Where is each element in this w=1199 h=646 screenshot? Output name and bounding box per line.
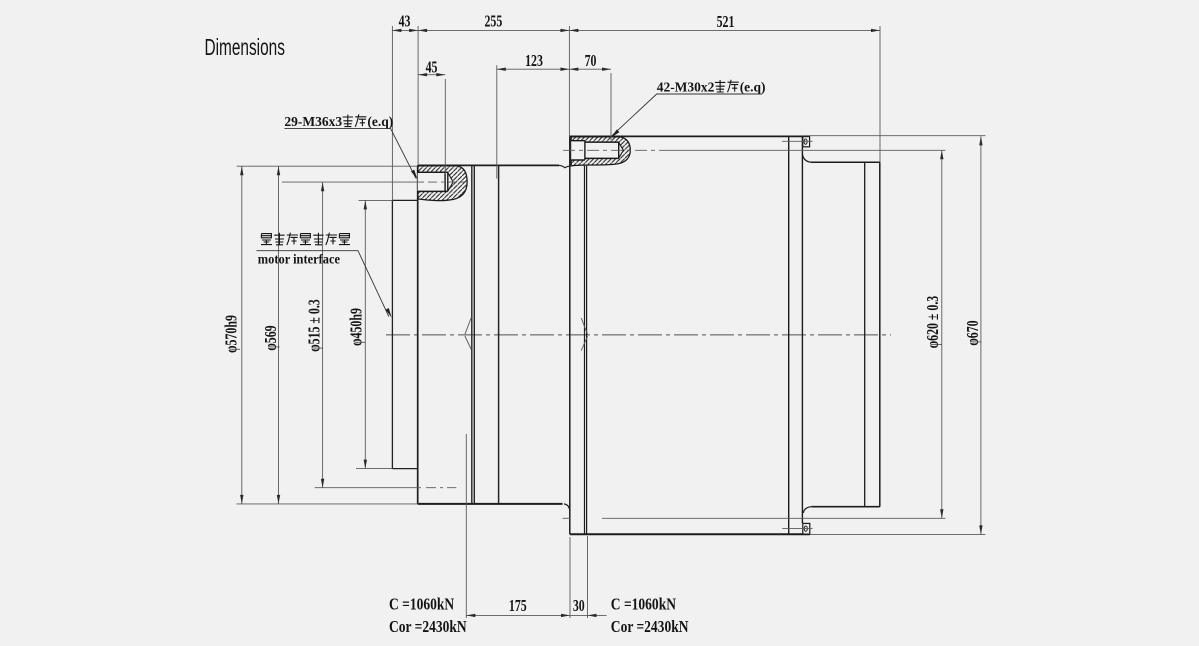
svg-text:123: 123 bbox=[525, 52, 543, 70]
svg-text:motor interface: motor interface bbox=[258, 251, 340, 267]
svg-text:29-M36x3: 29-M36x3 bbox=[284, 114, 342, 129]
svg-text:175: 175 bbox=[509, 597, 527, 615]
svg-text:C =1060kN: C =1060kN bbox=[389, 596, 454, 613]
svg-text:C =1060kN: C =1060kN bbox=[611, 596, 676, 613]
svg-text:φ569: φ569 bbox=[262, 325, 280, 350]
svg-text:45: 45 bbox=[426, 59, 438, 77]
svg-text:255: 255 bbox=[484, 13, 502, 31]
svg-text:42-M30x2: 42-M30x2 bbox=[657, 79, 715, 94]
svg-text:Dimensions: Dimensions bbox=[205, 35, 285, 61]
svg-text:(e.q): (e.q) bbox=[740, 79, 766, 94]
svg-text:φ670: φ670 bbox=[964, 320, 982, 345]
svg-text:φ570h9: φ570h9 bbox=[223, 315, 241, 353]
svg-text:30: 30 bbox=[573, 597, 585, 615]
svg-text:Cor =2430kN: Cor =2430kN bbox=[611, 619, 689, 636]
svg-text:70: 70 bbox=[585, 52, 597, 70]
svg-text:φ450h9: φ450h9 bbox=[348, 308, 366, 346]
svg-text:521: 521 bbox=[717, 13, 735, 31]
svg-text:φ620 ± 0.3: φ620 ± 0.3 bbox=[924, 296, 942, 348]
svg-text:43: 43 bbox=[399, 13, 411, 31]
svg-text:Cor =2430kN: Cor =2430kN bbox=[389, 619, 467, 636]
svg-text:φ515 ± 0.3: φ515 ± 0.3 bbox=[306, 299, 324, 351]
svg-text:(e.q): (e.q) bbox=[367, 114, 393, 129]
